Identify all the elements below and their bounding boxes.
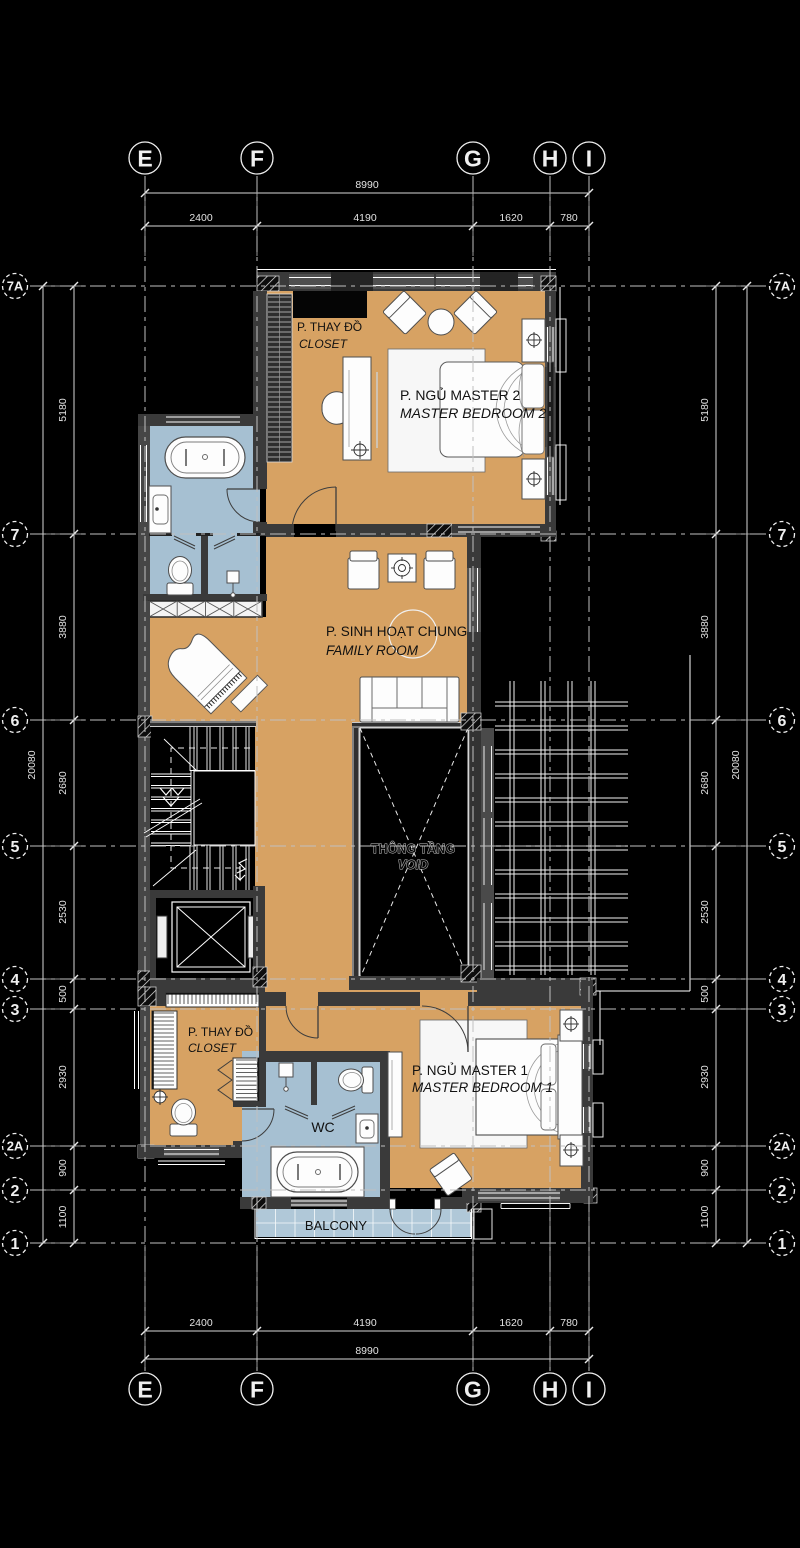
svg-text:2: 2 — [778, 1183, 787, 1200]
svg-text:H: H — [542, 145, 559, 171]
svg-text:900: 900 — [699, 1159, 711, 1177]
svg-text:G: G — [464, 145, 482, 171]
svg-text:2A: 2A — [774, 1139, 791, 1154]
svg-text:THÔNG TẦNG: THÔNG TẦNG — [371, 841, 455, 856]
svg-text:7A: 7A — [7, 279, 24, 294]
svg-text:1: 1 — [778, 1236, 787, 1253]
svg-text:3880: 3880 — [699, 615, 711, 639]
svg-text:500: 500 — [699, 985, 711, 1003]
svg-text:BALCONY: BALCONY — [305, 1218, 367, 1233]
svg-text:4: 4 — [11, 972, 20, 989]
svg-text:P. THAY ĐỒ: P. THAY ĐỒ — [297, 319, 362, 334]
svg-text:P. NGỦ MASTER 1: P. NGỦ MASTER 1 — [412, 1063, 528, 1078]
svg-text:2530: 2530 — [57, 900, 69, 924]
svg-text:500: 500 — [57, 985, 69, 1003]
svg-text:MASTER BEDROOM 2: MASTER BEDROOM 2 — [400, 405, 546, 421]
svg-text:5: 5 — [778, 839, 787, 856]
svg-text:7: 7 — [11, 527, 20, 544]
svg-text:5180: 5180 — [699, 398, 711, 422]
svg-text:E: E — [137, 1376, 152, 1402]
svg-text:2: 2 — [11, 1183, 20, 1200]
svg-text:P. NGỦ MASTER 2: P. NGỦ MASTER 2 — [400, 386, 521, 403]
svg-text:8990: 8990 — [355, 179, 379, 191]
svg-text:VOID: VOID — [398, 858, 429, 872]
svg-text:3: 3 — [11, 1002, 20, 1019]
svg-text:F: F — [250, 1376, 264, 1402]
svg-text:P. THAY ĐỒ: P. THAY ĐỒ — [188, 1024, 253, 1039]
svg-text:F: F — [250, 145, 264, 171]
svg-text:7: 7 — [778, 527, 787, 544]
svg-text:780: 780 — [560, 1317, 578, 1329]
svg-text:1100: 1100 — [699, 1206, 711, 1229]
svg-text:900: 900 — [57, 1159, 69, 1177]
svg-text:4190: 4190 — [353, 1317, 377, 1329]
svg-text:4190: 4190 — [353, 212, 377, 224]
svg-text:2530: 2530 — [699, 900, 711, 924]
svg-text:1100: 1100 — [57, 1206, 69, 1229]
svg-text:MASTER BEDROOM 1: MASTER BEDROOM 1 — [412, 1080, 553, 1095]
svg-text:2680: 2680 — [57, 771, 69, 795]
svg-text:4: 4 — [778, 972, 787, 989]
svg-text:G: G — [464, 1376, 482, 1402]
svg-text:P. SINH HOẠT CHUNG: P. SINH HOẠT CHUNG — [326, 624, 467, 639]
svg-text:780: 780 — [560, 212, 578, 224]
svg-text:20080: 20080 — [730, 750, 742, 779]
svg-text:3880: 3880 — [57, 615, 69, 639]
svg-text:CLOSET: CLOSET — [299, 337, 349, 351]
svg-text:I: I — [586, 1376, 592, 1402]
svg-text:I: I — [586, 145, 592, 171]
svg-text:2930: 2930 — [699, 1065, 711, 1089]
svg-text:1: 1 — [11, 1236, 20, 1253]
svg-text:H: H — [542, 1376, 559, 1402]
svg-text:2A: 2A — [7, 1139, 24, 1154]
svg-text:E: E — [137, 145, 152, 171]
svg-text:2400: 2400 — [189, 212, 213, 224]
svg-text:2400: 2400 — [189, 1317, 213, 1329]
svg-text:8990: 8990 — [355, 1345, 379, 1357]
svg-text:2930: 2930 — [57, 1065, 69, 1089]
svg-text:3: 3 — [778, 1002, 787, 1019]
svg-text:5: 5 — [11, 839, 20, 856]
svg-text:1620: 1620 — [499, 1317, 523, 1329]
svg-text:1620: 1620 — [499, 212, 523, 224]
svg-text:5180: 5180 — [57, 398, 69, 422]
svg-text:20080: 20080 — [26, 750, 38, 779]
svg-text:6: 6 — [778, 713, 787, 730]
svg-text:2680: 2680 — [699, 771, 711, 795]
svg-text:CLOSET: CLOSET — [188, 1041, 238, 1055]
svg-text:FAMILY ROOM: FAMILY ROOM — [326, 643, 419, 658]
svg-text:WC: WC — [311, 1119, 334, 1135]
svg-text:7A: 7A — [774, 279, 791, 294]
svg-text:6: 6 — [11, 713, 20, 730]
